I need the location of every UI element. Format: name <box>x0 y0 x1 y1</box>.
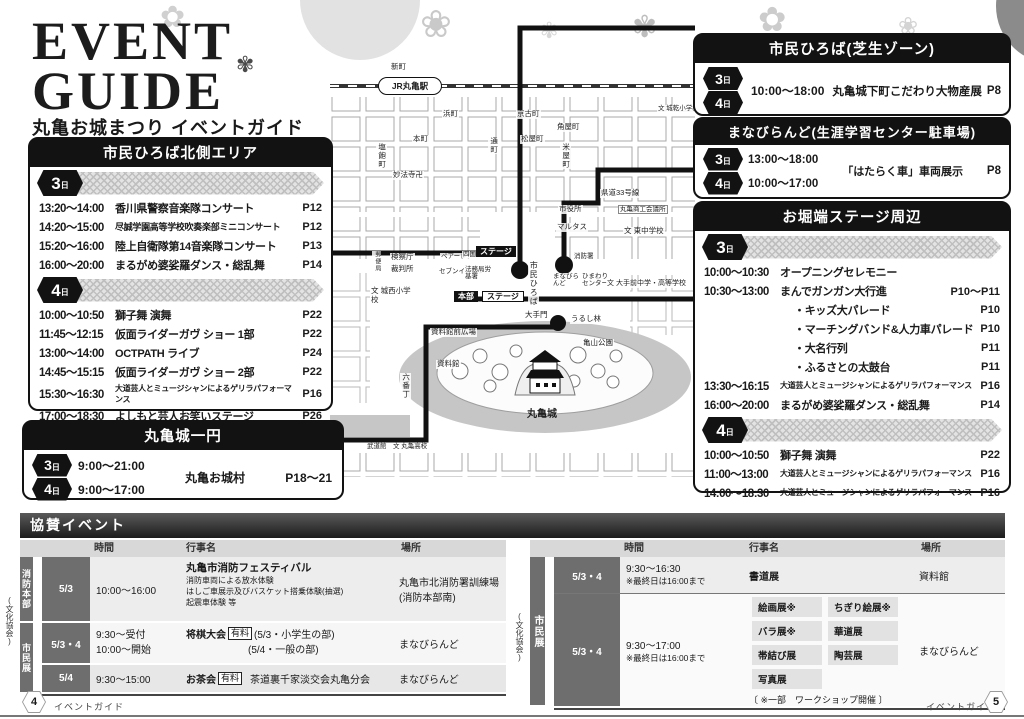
map-label-stage: ステージ <box>482 291 524 302</box>
box-manabi-land: まなびらんど(生涯学習センター駐車場) 3日 13:00〜18:00 4日 10… <box>693 117 1011 199</box>
place-cell: (消防本部南) <box>399 589 502 604</box>
day3-badge: 3日 <box>37 170 83 196</box>
map-label: 本町 <box>412 135 429 144</box>
time-note: ※最終日は16:00まで <box>626 575 741 587</box>
map-label: 妙法寺卍 <box>392 171 424 180</box>
schedule-row: ・キッズ大パレードP10 <box>695 300 1009 319</box>
schedule-row: 13:30〜16:15大道芸人とミュージシャンによるゲリラパフォーマンスP16 <box>695 376 1009 395</box>
map-label: マルタス <box>556 223 588 232</box>
schedule-row: ・マーチングバンド&人力車パレードP10 <box>695 319 1009 338</box>
day3-badge: 3日 <box>702 234 748 260</box>
hatch-bar <box>75 279 324 302</box>
exhibit-chip: 絵画展※ <box>752 597 822 617</box>
day3-badge: 3日 <box>703 67 743 90</box>
event-name: 書道展 <box>749 568 779 583</box>
group-shiminten: 市民展 <box>530 557 545 705</box>
day4-badge: 4日 <box>32 478 72 501</box>
sponsor-row: 5/4 9:30〜15:00 お茶会 有料 茶道裏千家淡交会丸亀分会 まなびらん… <box>42 665 506 692</box>
time-cell: 9:30〜受付 <box>96 626 178 641</box>
group-shiminten: 市民展 <box>20 623 33 692</box>
time-cell: 9:30〜17:00 <box>626 637 741 652</box>
day4-badge: 4日 <box>703 91 743 114</box>
place-cell: まなびらんど <box>919 643 979 658</box>
title-line1: EVENT <box>32 16 233 66</box>
map-label: 亀山公園 <box>582 339 614 348</box>
exhibit-chip: 写真展 <box>752 669 822 689</box>
sponsor-table-left: 時間 行事名 場所 消防本部 市民展 5/3 10:00〜16:00 丸亀市消防… <box>20 540 506 696</box>
hatch-bar <box>740 419 1002 442</box>
bunka-kyokai-label-right: (文化協会) <box>514 612 525 662</box>
schedule-row: 14:00〜18:30大道芸人とミュージシャンによるゲリラパフォーマンスP16 <box>695 483 1009 502</box>
map-label: 塩飽町 <box>376 143 387 169</box>
schedule-row: 14:20〜15:00尽誠学園高等学校吹奏楽部ミニコンサートP12 <box>30 217 331 236</box>
box-castle-area: 丸亀城一円 3日 9:00〜21:00 4日 9:00〜17:00 丸亀お城村 … <box>22 420 344 500</box>
header-place: 場所 <box>917 540 1005 557</box>
day4-badge: 4日 <box>703 172 743 195</box>
schedule-row: 10:00〜10:50獅子舞 演舞P22 <box>695 445 1009 464</box>
header-time: 時間 <box>620 540 745 557</box>
fee-badge: 有料 <box>228 627 252 640</box>
map-label: 郵便局 <box>372 251 381 272</box>
box-castle-title: 丸亀城一円 <box>24 422 342 450</box>
event-sub: 起震車体験 等 <box>186 597 391 608</box>
day3-badge: 3日 <box>703 148 743 171</box>
map-label: 検察庁 <box>390 253 415 262</box>
schedule-row: ・ふるさとの太鼓台P11 <box>695 357 1009 376</box>
box-ohori-title: お堀端ステージ周辺 <box>695 203 1009 231</box>
day4-badge: 4日 <box>37 277 83 303</box>
day4-badge: 4日 <box>702 417 748 443</box>
exhibit-chip: 帯結び展 <box>752 645 822 665</box>
header-event: 行事名 <box>745 540 917 557</box>
map-label: まなびらんど <box>552 273 580 288</box>
map-label: 市民ひろば <box>528 261 539 306</box>
map-label: 文 城西小学校 <box>370 287 418 304</box>
schedule-row: 11:45〜12:15仮面ライダーガヴ ショー 1部P22 <box>30 324 331 343</box>
schedule-row: 13:00〜14:00OCTPATH ライブP24 <box>30 343 331 362</box>
map-label: 県道33号線 <box>600 189 640 198</box>
exhibit-chip: ちぎり絵展※ <box>828 597 898 617</box>
day3-header: 3日 <box>37 170 324 196</box>
box-ohori-stage: お堀端ステージ周辺 3日 10:00〜10:30オープニングセレモニー 10:3… <box>693 201 1011 493</box>
map-label: 文 東中学校 <box>623 227 665 236</box>
page-title: EVENT GUIDE <box>32 16 233 116</box>
time-cell: 10:00〜開始 <box>96 641 178 656</box>
exhibit-chip: バラ展※ <box>752 621 822 641</box>
map-label-castle: 丸亀城 <box>526 409 558 421</box>
map-label: 文 丸亀高校 <box>392 443 428 450</box>
schedule-row: 16:00〜20:00まるがめ婆娑羅ダンス・総乱舞P14 <box>30 255 331 274</box>
sponsor-row: 5/3・4 9:30〜受付 10:00〜開始 将棋大会有料(5/3・小学生の部)… <box>42 623 506 663</box>
box-shibafu-title: 市民ひろば(芝生ゾーン) <box>695 35 1009 63</box>
time-cell: 10:00〜16:00 <box>96 582 156 597</box>
day3-time: 13:00〜18:00 <box>748 151 818 167</box>
hatch-bar <box>740 236 1002 259</box>
map-label: うるし林 <box>570 315 602 324</box>
map-label: 裁判所 <box>390 265 415 274</box>
plum-blossom-icon: ✾ <box>236 52 254 78</box>
event-detail: (5/4・一般の部) <box>186 641 391 656</box>
sponsor-table-header: 時間 行事名 場所 <box>20 540 506 557</box>
schedule-row: 10:00〜10:50獅子舞 演舞P22 <box>30 305 331 324</box>
map-label: 松屋町 <box>520 135 545 144</box>
map-label: 京古町 <box>516 110 541 119</box>
day4-header: 4日 <box>702 417 1002 443</box>
place-cell: まなびらんど <box>399 636 459 651</box>
event-detail: 茶道裏千家淡交会丸亀分会 <box>250 671 370 686</box>
time-cell: 9:30〜16:30 <box>626 560 741 575</box>
header-event: 行事名 <box>182 540 397 557</box>
sponsor-table-right: 時間 行事名 場所 市民展 5/3・4 9:30〜16:30 ※最終日は16:0… <box>530 540 1005 710</box>
schedule-row: 14:45〜15:15仮面ライダーガヴ ショー 2部P22 <box>30 362 331 381</box>
event-page: P8 <box>987 165 1001 177</box>
page-bottom-rule <box>0 715 1024 717</box>
festival-map: JR丸亀駅 新町 浜町 京古町 角屋町 文 城乾小学校 本町 通町 松屋町 米屋… <box>330 25 695 477</box>
event-sub: 消防車両による放水体験 <box>186 575 391 586</box>
map-label: 丸亀商工会議所 <box>618 205 668 214</box>
sponsor-row: 5/3・4 9:30〜16:30 ※最終日は16:00まで 書道展 資料館 <box>554 557 1005 594</box>
schedule-row: 10:30〜13:00まんでガンガン大行進P10〜P11 <box>695 281 1009 300</box>
day4-header: 4日 <box>37 277 324 303</box>
schedule-row: 10:00〜10:30オープニングセレモニー <box>695 262 1009 281</box>
map-label: 資料館前広場 <box>430 328 477 337</box>
map-label: 新町 <box>390 63 407 72</box>
footer-label-left: イベントガイド <box>54 700 124 713</box>
box-manabi-title: まなびらんど(生涯学習センター駐車場) <box>695 119 1009 145</box>
date-cell: 5/3 <box>42 557 90 621</box>
event-name: お茶会 <box>186 671 216 686</box>
map-label: 六番丁 <box>400 373 411 399</box>
map-label-honbu: 本部 <box>454 291 478 302</box>
page-subtitle: 丸亀お城まつり イベントガイド <box>32 114 304 140</box>
day4-time: 10:00〜17:00 <box>748 175 818 191</box>
date-cell: 5/3・4 <box>42 623 90 663</box>
map-label-station: JR丸亀駅 <box>378 77 442 95</box>
time-cell: 9:30〜15:00 <box>96 671 151 686</box>
date-cell: 5/4 <box>42 665 90 692</box>
event-name: 丸亀市消防フェスティバル <box>186 560 391 575</box>
map-label: 大手門 <box>524 311 549 320</box>
date-cell: 5/3・4 <box>554 557 620 593</box>
fee-badge: 有料 <box>218 672 242 685</box>
hatch-bar <box>75 172 324 195</box>
exhibit-chip: 華道展 <box>828 621 898 641</box>
map-label: 米屋町 <box>560 143 571 169</box>
schedule-row: 15:20〜16:00陸上自衛隊第14音楽隊コンサートP13 <box>30 236 331 255</box>
place-cell: まなびらんど <box>399 671 459 686</box>
workshop-footnote: 〔 ※一部 ワークショップ開催 〕 <box>749 693 911 706</box>
sponsor-row: 5/3・4 9:30〜17:00 ※最終日は16:00まで 絵画展※ちぎり絵展※… <box>554 594 1005 706</box>
map-label: 市役所 <box>558 205 583 214</box>
sponsor-section-title: 協賛イベント <box>20 513 1005 538</box>
sponsor-table-header: 時間 行事名 場所 <box>530 540 1005 557</box>
schedule-row: ・大名行列P11 <box>695 338 1009 357</box>
event-sub: はしご車展示及びバスケット搭乗体験(抽選) <box>186 586 391 597</box>
sponsor-row: 5/3 10:00〜16:00 丸亀市消防フェスティバル 消防車両による放水体験… <box>42 557 506 621</box>
map-label-stage: ステージ <box>476 246 516 257</box>
group-shobo-honbu: 消防本部 <box>20 557 33 621</box>
schedule-row: 13:20〜14:00香川県警察音楽隊コンサートP12 <box>30 198 331 217</box>
map-label: 浜町 <box>442 110 459 119</box>
event-name: 丸亀城下町こだわり大物産展 <box>832 83 987 99</box>
event-name: 丸亀お城村 <box>145 469 286 486</box>
event-name: 将棋大会 <box>186 626 226 641</box>
header-time: 時間 <box>90 540 182 557</box>
header-place: 場所 <box>397 540 506 557</box>
place-cell: 資料館 <box>919 568 949 583</box>
map-label: 文 大手前中学・高等学校 <box>606 280 687 288</box>
map-label: 武道館 <box>366 443 388 450</box>
map-label: 消防署 <box>573 253 595 260</box>
bunka-kyokai-label-left: (文化協会) <box>4 596 15 646</box>
time-note: ※最終日は16:00まで <box>626 652 741 664</box>
day3-badge: 3日 <box>32 454 72 477</box>
box-shibafu-zone: 市民ひろば(芝生ゾーン) 3日 4日 10:00〜18:00 丸亀城下町こだわり… <box>693 33 1011 116</box>
event-time: 10:00〜18:00 <box>751 82 824 99</box>
day3-header: 3日 <box>702 234 1002 260</box>
event-page: P18〜21 <box>285 469 332 486</box>
map-label: 法務局労基署 <box>464 266 494 281</box>
event-page: P8 <box>987 85 1001 97</box>
exhibit-chip: 陶芸展 <box>828 645 898 665</box>
title-line2: GUIDE <box>32 66 233 116</box>
map-label: 資料館 <box>436 360 461 369</box>
event-detail: (5/3・小学生の部) <box>254 626 335 641</box>
box-kitagawa-title: 市民ひろば北側エリア <box>30 139 331 167</box>
event-name: 「はたらく車」車両展示 <box>818 163 987 179</box>
day3-time: 9:00〜21:00 <box>78 457 145 474</box>
map-label: 角屋町 <box>556 123 581 132</box>
box-kitagawa-area: 市民ひろば北側エリア 3日 13:20〜14:00香川県警察音楽隊コンサートP1… <box>28 137 333 411</box>
map-label: 通町 <box>488 137 499 154</box>
day4-time: 9:00〜17:00 <box>78 481 145 498</box>
schedule-row: 11:00〜13:00大道芸人とミュージシャンによるゲリラパフォーマンスP16 <box>695 464 1009 483</box>
date-cell: 5/3・4 <box>554 594 620 706</box>
place-cell: 丸亀市北消防署訓練場 <box>399 574 502 589</box>
schedule-row: 15:30〜16:30大道芸人とミュージシャンによるゲリラパフォーマンスP16 <box>30 381 331 406</box>
schedule-row: 16:00〜20:00まるがめ婆娑羅ダンス・総乱舞P14 <box>695 395 1009 414</box>
